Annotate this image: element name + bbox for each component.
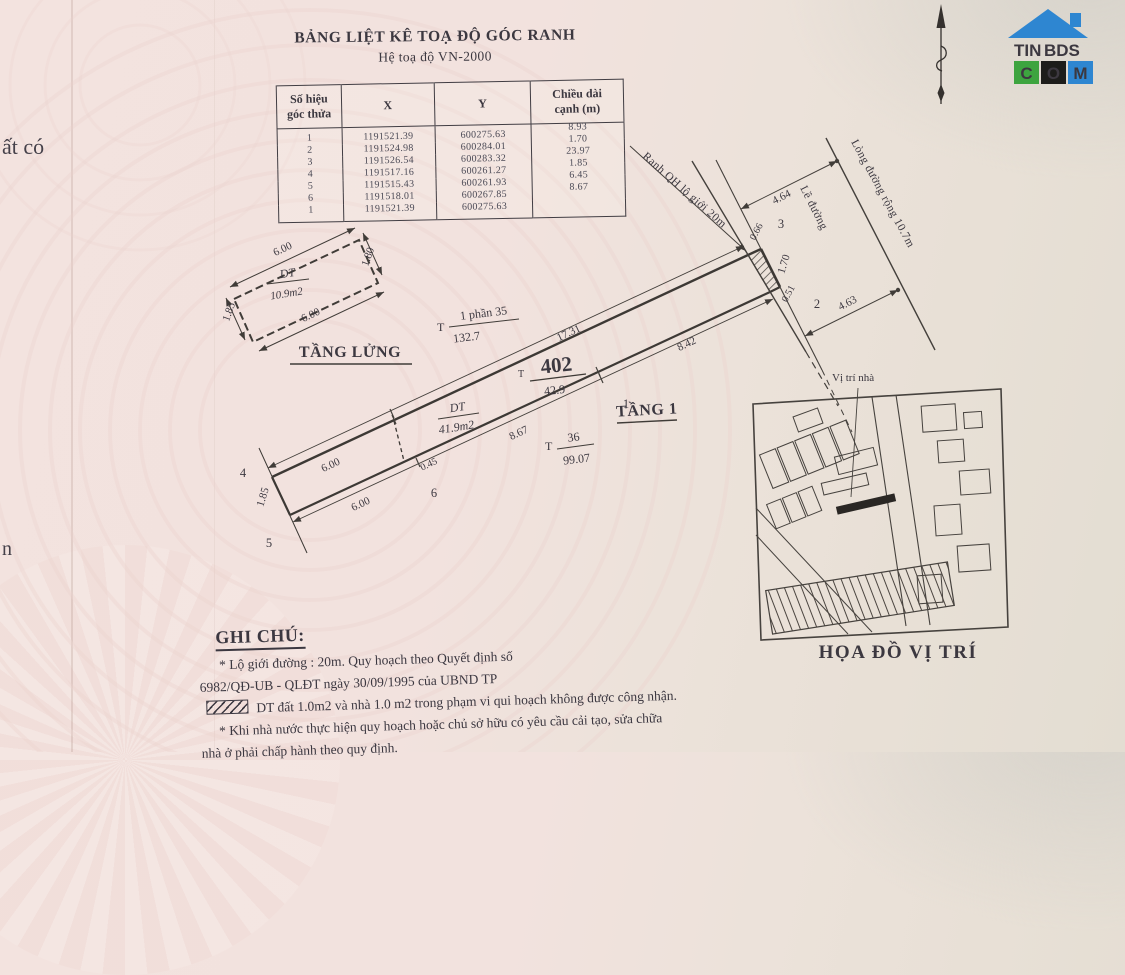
- mezzanine-area-label: DT: [278, 265, 298, 282]
- document-title-block: BẢNG LIỆT KÊ TOẠ ĐỘ GÓC RANH Hệ toạ độ V…: [253, 26, 617, 67]
- dim-street-lower: 4.63: [836, 293, 859, 313]
- col-header-corner-line1: Số hiệu: [277, 91, 341, 107]
- col-header-length: Chiều dài cạnh (m): [530, 79, 624, 124]
- neighbor-upper-prefix: T: [437, 320, 445, 334]
- point-label-4: 4: [240, 466, 247, 480]
- cell-length: [533, 199, 626, 218]
- logo-house-chimney: [1070, 13, 1081, 27]
- cell-length-value: 8.67: [569, 181, 588, 193]
- document-title: BẢNG LIỆT KÊ TOẠ ĐỘ GÓC RANH: [253, 26, 617, 48]
- cell-x: 1191521.39: [342, 126, 435, 144]
- mezzanine-area-value: 10.9m2: [269, 285, 304, 302]
- house-area-value: 41.9m2: [438, 417, 475, 436]
- cell-corner-id: 1: [277, 128, 342, 146]
- parcel-thua-prefix: T: [518, 369, 524, 380]
- dim-bottom-left: 6.00: [349, 495, 372, 514]
- dim-end-right: 1.70: [776, 253, 793, 275]
- col-header-corner: Số hiệu góc thửa: [276, 85, 342, 129]
- neighbor-upper-denominator: 132.7: [452, 328, 481, 345]
- house-area-label: DT: [448, 399, 468, 416]
- map-pointer-label: Vị trí nhà: [832, 372, 874, 384]
- cell-length-value: 1.85: [569, 157, 588, 169]
- floor1-label-underline: [617, 420, 677, 423]
- cell-length-value: 23.97: [566, 145, 590, 157]
- mezzanine-floor-label: TẦNG LỬNG: [299, 342, 401, 361]
- le-duong-label: Lề đường: [797, 183, 830, 231]
- point-label-5: 5: [266, 536, 272, 550]
- scanned-land-certificate-page: { "document": { "title": "BẢNG LIỆT KÊ T…: [0, 0, 1125, 752]
- col-header-corner-line2: góc thửa: [277, 106, 341, 122]
- neighbor-lower-fraction-bar: [557, 444, 594, 449]
- cell-y: 600275.63: [435, 124, 532, 142]
- logo-letter-m: M: [1073, 64, 1087, 83]
- long-duong-label: Lòng đường rộng 10.7m: [848, 138, 916, 250]
- point-label-6: 6: [431, 486, 437, 500]
- map-caption: HỌA ĐỒ VỊ TRÍ: [819, 641, 978, 663]
- cell-y: 600275.63: [436, 200, 533, 219]
- hatch-legend-icon: [206, 699, 248, 714]
- cell-length-value: 1.70: [568, 133, 587, 145]
- point-label-3: 3: [778, 217, 784, 231]
- notes-heading: GHI CHÚ:: [215, 625, 305, 652]
- col-header-x: X: [341, 83, 435, 128]
- cell-length-value: 6.45: [569, 169, 588, 181]
- north-arrow-icon: [937, 4, 947, 104]
- parcel-number: 402: [539, 351, 573, 378]
- neighbor-lower-denominator: 99.07: [562, 450, 591, 467]
- location-map: [753, 388, 1008, 640]
- cell-corner-id: 1: [279, 204, 344, 223]
- logo-brand-bds: BDS: [1044, 41, 1080, 60]
- logo-letter-o: O: [1047, 64, 1060, 83]
- dim-left-edge: 1.85: [255, 486, 272, 508]
- dim-street-upper: 4.64: [770, 187, 793, 207]
- col-header-length-line2: cạnh (m): [531, 101, 623, 118]
- neighbor-lower-prefix: T: [545, 439, 553, 453]
- notes-section: GHI CHÚ: * Lộ giới đường : 20m. Quy hoạc…: [196, 610, 820, 765]
- logo-letter-c: C: [1020, 64, 1032, 83]
- col-header-y: Y: [434, 81, 532, 126]
- dim-bottom-small: 0.45: [419, 456, 440, 473]
- point-label-2: 2: [814, 297, 820, 311]
- logo-brand-tin: TIN: [1014, 41, 1041, 60]
- coordinate-table: Số hiệu góc thửa X Y Chiều dài cạnh (m) …: [276, 79, 627, 224]
- col-header-length-line1: Chiều dài: [531, 86, 623, 103]
- parcel-area: 42.9: [543, 382, 565, 398]
- parcel-dimension-lines: [268, 246, 773, 522]
- cell-x: 1191521.39: [343, 202, 436, 221]
- map-highlighted-parcel: [836, 493, 896, 514]
- mezzanine-dim-top: 6.00: [271, 240, 294, 259]
- dim-top-end: 0.66: [748, 222, 766, 243]
- dim-top-main: 17.31: [555, 323, 583, 344]
- dim-end-bottom: 0.51: [780, 284, 798, 305]
- cell-length-value: 8.93: [568, 121, 587, 133]
- neighbor-upper-fraction-bar: [449, 319, 519, 327]
- tinbds-logo: TIN BDS C O M: [1008, 9, 1093, 84]
- page-edge-fragment-bottom: n: [2, 538, 12, 561]
- page-edge-fragment-top: ất có: [2, 134, 44, 160]
- neighbor-lower-numerator: 36: [567, 429, 581, 444]
- dim-top-left: 6.00: [319, 456, 342, 475]
